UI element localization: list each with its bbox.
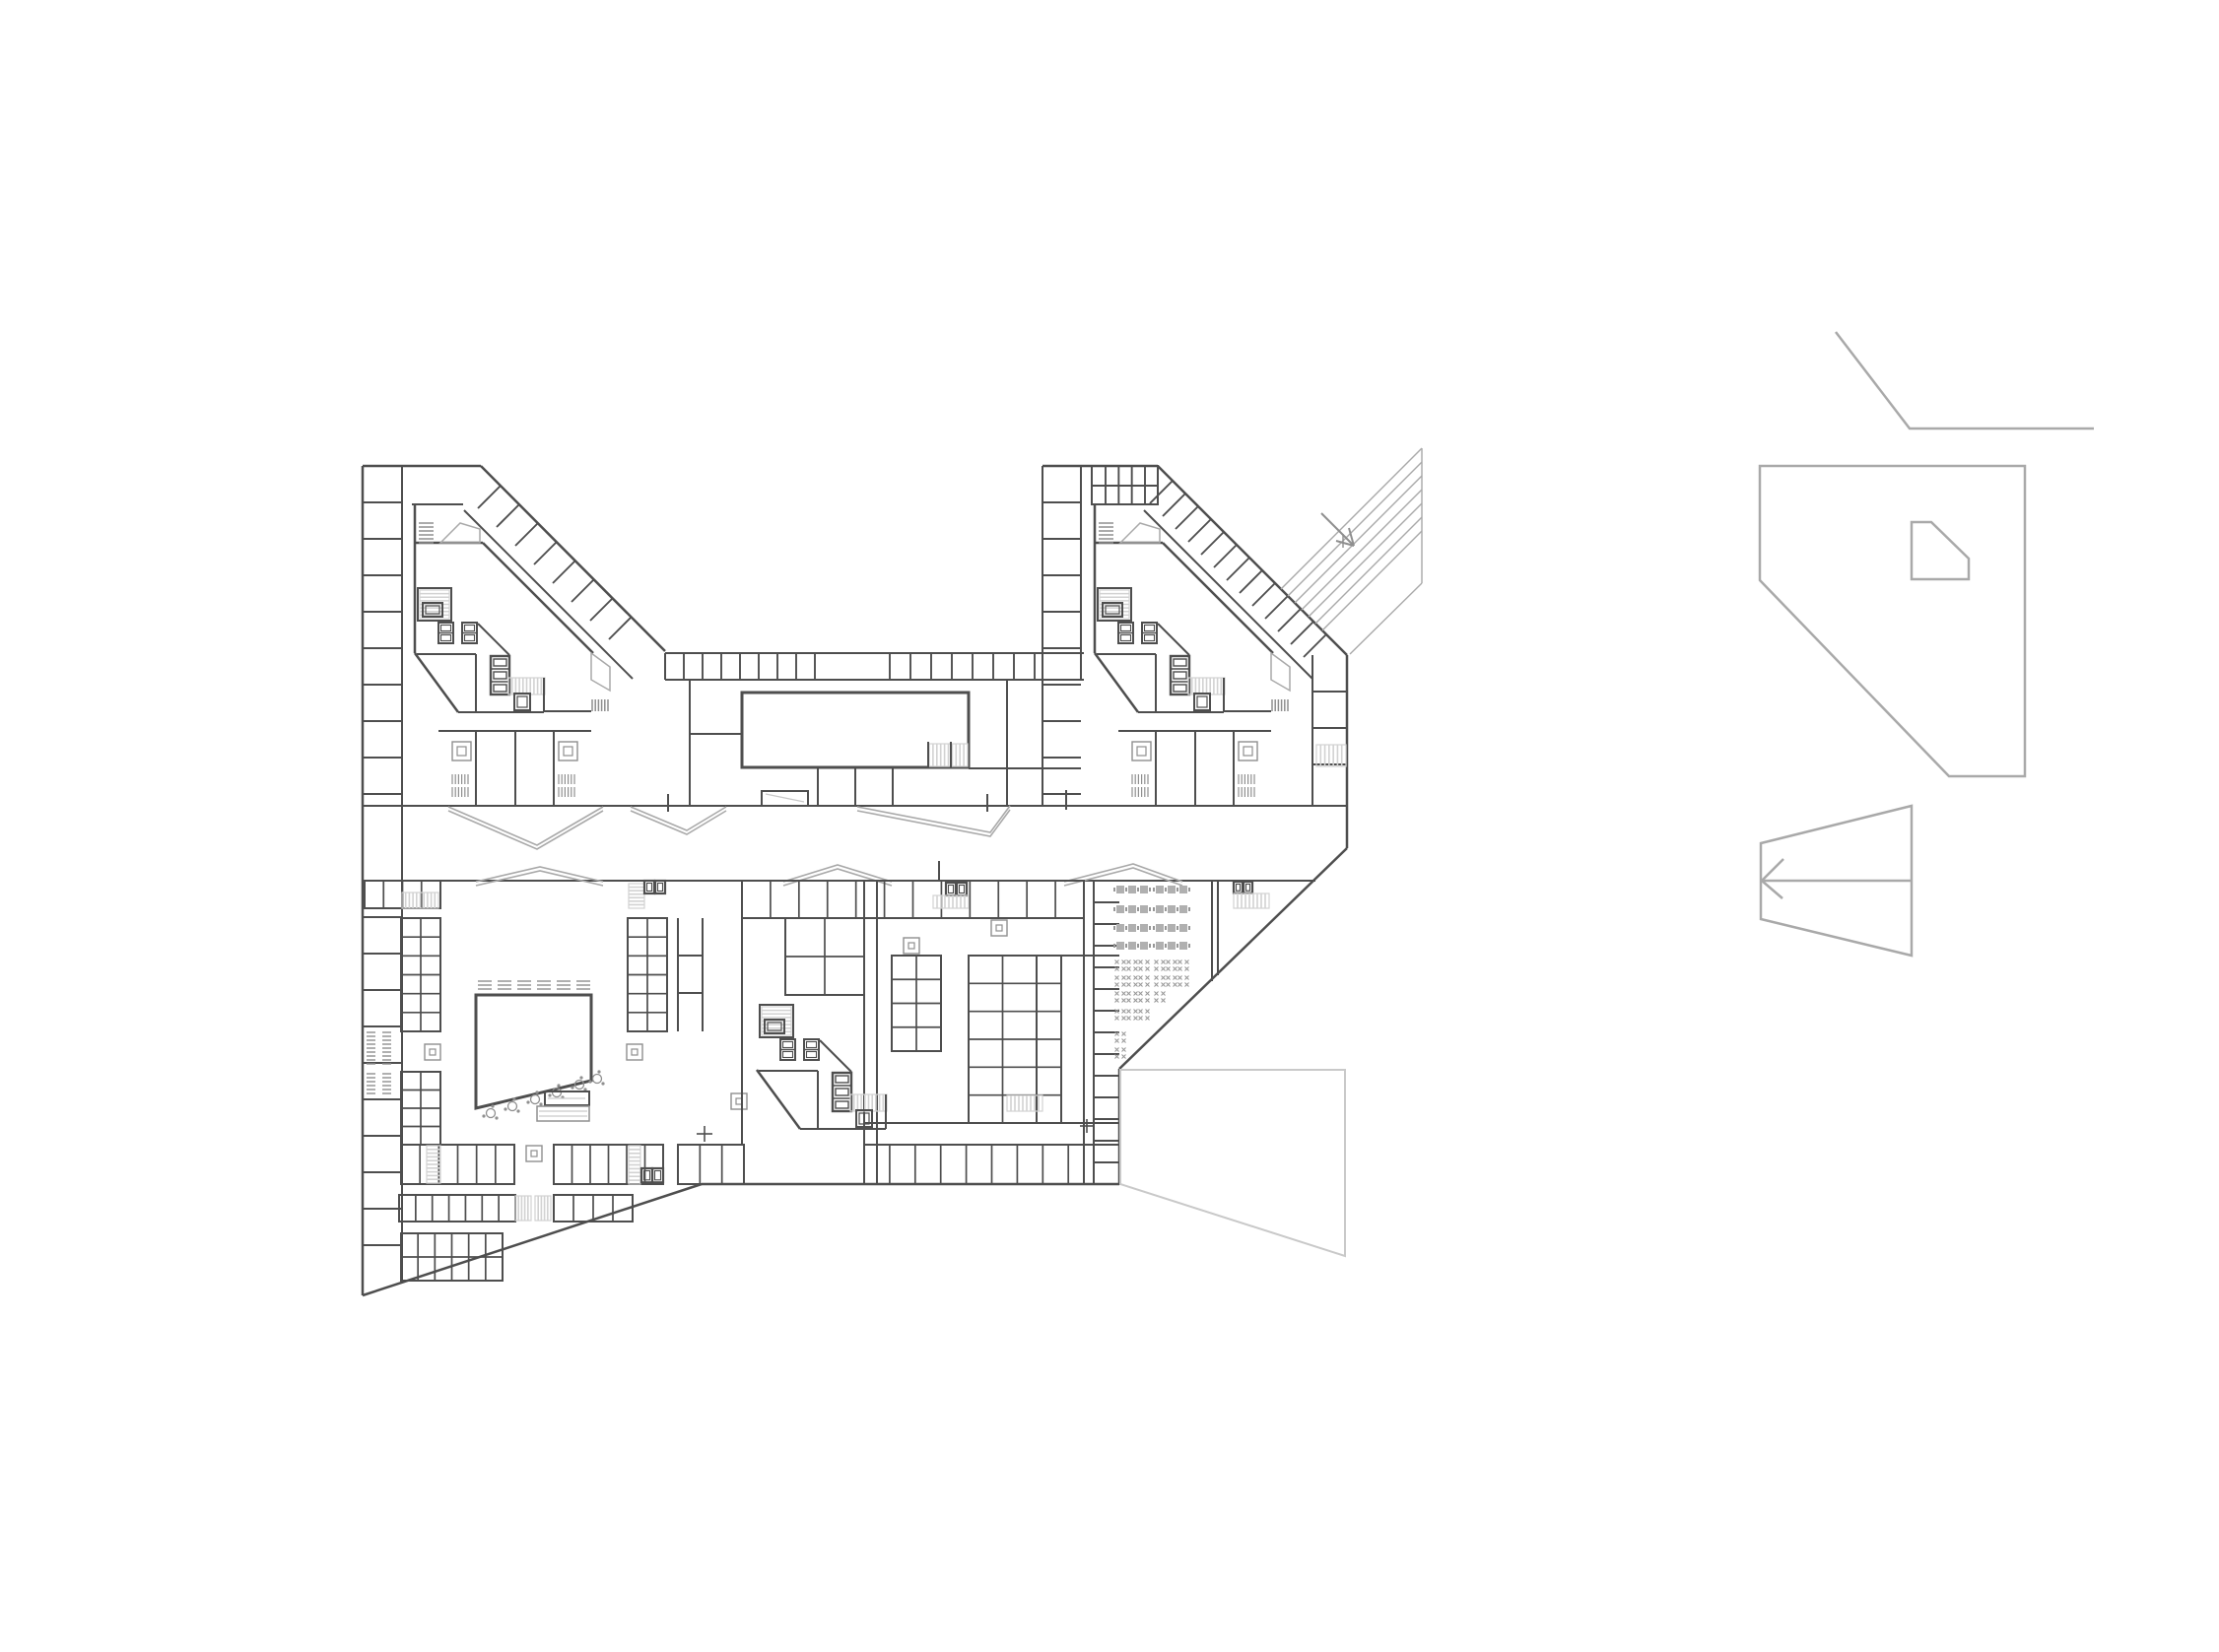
reading-room-tables: [1165, 926, 1167, 930]
8: [590, 598, 613, 621]
ramp-line-6: [1315, 517, 1422, 624]
reading-room-tables: [1153, 888, 1155, 892]
reading-room-tables: [1140, 942, 1148, 950]
foyer-cafe-tables: [593, 1075, 602, 1084]
reading-room-tables: [1137, 888, 1139, 892]
reading-room-tables: [1156, 942, 1164, 950]
skylight-markers: [632, 1049, 638, 1055]
reading-room-tables: [1177, 944, 1178, 948]
core-elevator-stack: [494, 685, 506, 692]
canopy-south-1: [476, 871, 603, 886]
central-hall: [742, 693, 969, 767]
reading-room-tables: [1149, 944, 1151, 948]
reading-room-tables: [1179, 924, 1187, 932]
reading-room-tables: [1188, 944, 1190, 948]
foyer-cafe-tables: [601, 1082, 604, 1085]
reading-room-tables: [1168, 905, 1176, 913]
wing-light-shape: [440, 523, 480, 543]
reading-room-tables: [1137, 907, 1139, 911]
reading-room-tables: [1149, 907, 1151, 911]
core-elevator-small: [1106, 606, 1119, 614]
core-elevator-pairs: [1145, 635, 1155, 641]
floor-plan-drawing: [0, 0, 2219, 1652]
13: [1252, 583, 1275, 606]
skylight-markers: [526, 1146, 542, 1161]
13: [1176, 506, 1198, 529]
reading-room-tables: [1113, 907, 1115, 911]
reading-room-tables: [1113, 944, 1115, 948]
core-elevator-pairs: [465, 626, 475, 631]
skylight-markers: [996, 925, 1002, 931]
skylight-markers: [904, 938, 919, 954]
reading-room-tables: [1188, 907, 1190, 911]
foyer-cafe-tables: [512, 1097, 515, 1100]
skylight-markers: [908, 943, 914, 949]
canopy-west: [448, 807, 603, 845]
ramp-line-2: [1288, 462, 1422, 596]
13: [1188, 519, 1211, 542]
core-elevator-stack: [494, 672, 506, 679]
reading-room-tables: [1168, 942, 1176, 950]
reading-room-tables: [1165, 907, 1167, 911]
canopy-center: [631, 811, 726, 834]
wing-skylights: [457, 747, 466, 756]
reading-room-tables: [1153, 944, 1155, 948]
reading-room-tables: [1125, 944, 1127, 948]
foyer-cafe-tables: [482, 1114, 485, 1117]
foyer-cafe-tables: [597, 1070, 600, 1073]
south-band1-elevators: [655, 1171, 661, 1180]
core-chamfer: [478, 624, 509, 655]
reading-room-tables: [1125, 926, 1127, 930]
view-cone-arrow-b: [1762, 881, 1782, 898]
foyer-cafe-tables: [495, 1116, 498, 1119]
13: [1227, 558, 1249, 580]
13: [1291, 622, 1313, 644]
skylight-markers: [991, 920, 1007, 936]
wing-skylights: [1239, 742, 1257, 760]
reading-room-tables: [1177, 926, 1178, 930]
terrace-outline: [1120, 1070, 1345, 1256]
plan-root: [363, 332, 2094, 1295]
13: [1304, 634, 1326, 657]
foyer-cafe-tables: [487, 1109, 496, 1118]
foyer-cafe-tables: [508, 1102, 517, 1111]
long-table-b: [537, 1106, 589, 1121]
reading-room-tables: [1168, 924, 1176, 932]
foyer-cafe-tables: [526, 1100, 529, 1103]
outline-right-wing-diagonal: [1158, 466, 1347, 655]
core-chamfer-sw: [757, 1070, 800, 1129]
outline-left-wing-diagonal: [481, 466, 665, 651]
foyer-cafe-tables: [531, 1095, 540, 1104]
core-elevator-pairs: [441, 635, 451, 641]
reading-room-tables: [1113, 888, 1115, 892]
entry-elevators-c: [1244, 882, 1252, 893]
reading-room-tables: [1165, 944, 1167, 948]
ramp-line-1: [1281, 448, 1422, 589]
core-elevator-pairs: [1121, 635, 1131, 641]
canopy-south-1: [476, 867, 603, 882]
core-chamfer: [820, 1040, 851, 1072]
foyer-cafe-tables: [579, 1076, 582, 1079]
wing-skylights: [1137, 747, 1146, 756]
skylight-markers: [731, 1093, 747, 1109]
reading-room-tables: [1149, 926, 1151, 930]
foyer-cafe-tables: [504, 1107, 506, 1110]
outline-bottom-diagonal: [363, 1184, 702, 1295]
core-elevator-stack: [1174, 659, 1186, 666]
8: [534, 542, 557, 564]
entry-elevators-b: [949, 886, 954, 893]
reading-room-tables: [1128, 905, 1136, 913]
ramp-line-3: [1295, 476, 1422, 603]
13: [1240, 570, 1262, 593]
reading-room-tables: [1128, 886, 1136, 893]
8: [572, 579, 594, 602]
reading-room-tables: [1156, 924, 1164, 932]
8: [553, 561, 575, 583]
foyer-cafe-tables: [557, 1084, 560, 1087]
wing-skylights: [559, 742, 577, 760]
core-elevator-pairs: [807, 1052, 817, 1058]
reading-room-tables: [1125, 907, 1127, 911]
canopy-south-2: [783, 865, 892, 882]
foyer-cafe-tables: [539, 1102, 542, 1105]
core-elevator-pairs: [783, 1042, 793, 1048]
13: [1265, 596, 1288, 619]
reading-room-tables: [1137, 944, 1139, 948]
core-elevator-2: [1197, 696, 1207, 707]
core-chamfer-sw: [415, 653, 458, 712]
reading-room-tables: [1188, 888, 1190, 892]
core-elevator-pairs: [441, 626, 451, 631]
reading-room-tables: [1149, 888, 1151, 892]
site-plan-outline: [1760, 466, 2025, 776]
concourse-desk-line: [766, 794, 804, 802]
south-band1-east: [678, 1145, 744, 1184]
foyer-cafe-tables: [535, 1090, 538, 1093]
entry-stair-c: [1234, 893, 1269, 908]
reading-room-tables: [1177, 907, 1178, 911]
entry-elevators-a: [658, 884, 663, 892]
13: [1201, 532, 1224, 555]
reading-room-tables: [1168, 886, 1176, 893]
foyer-cafe-tables: [548, 1093, 551, 1096]
reading-room-tables: [1179, 942, 1187, 950]
core-elevator-pairs: [1145, 626, 1155, 631]
ramp-edge-diagonal: [1350, 583, 1422, 654]
13: [1163, 494, 1185, 516]
13: [1214, 545, 1237, 567]
core-elevator-stack: [1174, 685, 1186, 692]
core-elevator-stack: [836, 1089, 848, 1095]
entry-elevators-b: [960, 886, 965, 893]
reading-room-tables: [1140, 905, 1148, 913]
8: [609, 617, 632, 639]
reading-room-tables: [1179, 905, 1187, 913]
skylight-markers: [531, 1151, 537, 1156]
reading-room-tables: [1125, 888, 1127, 892]
8: [497, 504, 519, 527]
core-elevator-stack: [836, 1101, 848, 1108]
skylight-markers: [430, 1049, 436, 1055]
core-elevator-2: [517, 696, 527, 707]
wing-door-shape: [591, 653, 610, 691]
13: [1150, 481, 1173, 503]
reading-room-tables: [1153, 926, 1155, 930]
8: [515, 523, 538, 546]
core-elevator-pairs: [1121, 626, 1131, 631]
skylight-markers: [627, 1044, 642, 1060]
13: [1278, 609, 1301, 631]
wing-skylights: [1244, 747, 1252, 756]
stair-core-2: [757, 1005, 887, 1129]
entry-elevators-c: [1237, 885, 1241, 892]
core-elevator-pairs: [465, 635, 475, 641]
core-elevator-small: [768, 1023, 781, 1030]
core-elevator-stack: [494, 659, 506, 666]
reading-room-tables: [1165, 888, 1167, 892]
reading-room-tables: [1140, 924, 1148, 932]
reading-room-tables: [1156, 886, 1164, 893]
8: [478, 486, 501, 508]
foyer-cafe-tables: [571, 1086, 573, 1089]
core-elevator-stack: [836, 1076, 848, 1083]
foyer-cafe-tables: [588, 1080, 591, 1083]
wing-skylights: [564, 747, 572, 756]
foyer-cafe-tables: [516, 1109, 519, 1112]
reading-room-tables: [1116, 905, 1124, 913]
floor-plan-page: [0, 0, 2219, 1652]
reading-room-tables: [1128, 942, 1136, 950]
reading-room-tables: [1153, 907, 1155, 911]
reading-room-tables: [1156, 905, 1164, 913]
reading-room-tables: [1116, 924, 1124, 932]
wing-light-shape: [1120, 523, 1160, 543]
reading-room-tables: [1116, 942, 1124, 950]
reading-room-tables: [1179, 886, 1187, 893]
core-elevator-stack: [1174, 672, 1186, 679]
core-chamfer-sw: [1095, 653, 1138, 712]
entry-elevators-c: [1246, 885, 1250, 892]
entry-stair-b: [933, 895, 969, 908]
foyer-cafe-tables: [491, 1104, 494, 1107]
stair-core-1: [1095, 588, 1225, 712]
wing-skylights: [1132, 742, 1151, 760]
entry-elevators-c: [1234, 882, 1243, 893]
reading-room-tables: [1140, 886, 1148, 893]
skylight-markers: [425, 1044, 440, 1060]
wing-door-shape: [1271, 653, 1290, 691]
reading-room-tables: [1188, 926, 1190, 930]
wing-skylights: [452, 742, 471, 760]
core-elevator-pairs: [783, 1052, 793, 1058]
entry-elevators-a: [647, 884, 652, 892]
reading-room-tables: [1177, 888, 1178, 892]
view-cone-arrow-a: [1762, 859, 1783, 881]
site-boundary-line: [1836, 332, 2094, 429]
reading-room-tables: [1137, 926, 1139, 930]
core-elevator-pairs: [807, 1042, 817, 1048]
reading-room-tables: [1128, 924, 1136, 932]
wing-court-diagonal: [1163, 543, 1273, 653]
core-chamfer: [1158, 624, 1189, 655]
reading-room-tables: [1113, 926, 1115, 930]
stair-core-0: [415, 588, 545, 712]
reading-room-tables: [1116, 886, 1124, 893]
site-plan-building-footprint: [1912, 522, 1969, 579]
core-elevator-small: [426, 606, 439, 614]
